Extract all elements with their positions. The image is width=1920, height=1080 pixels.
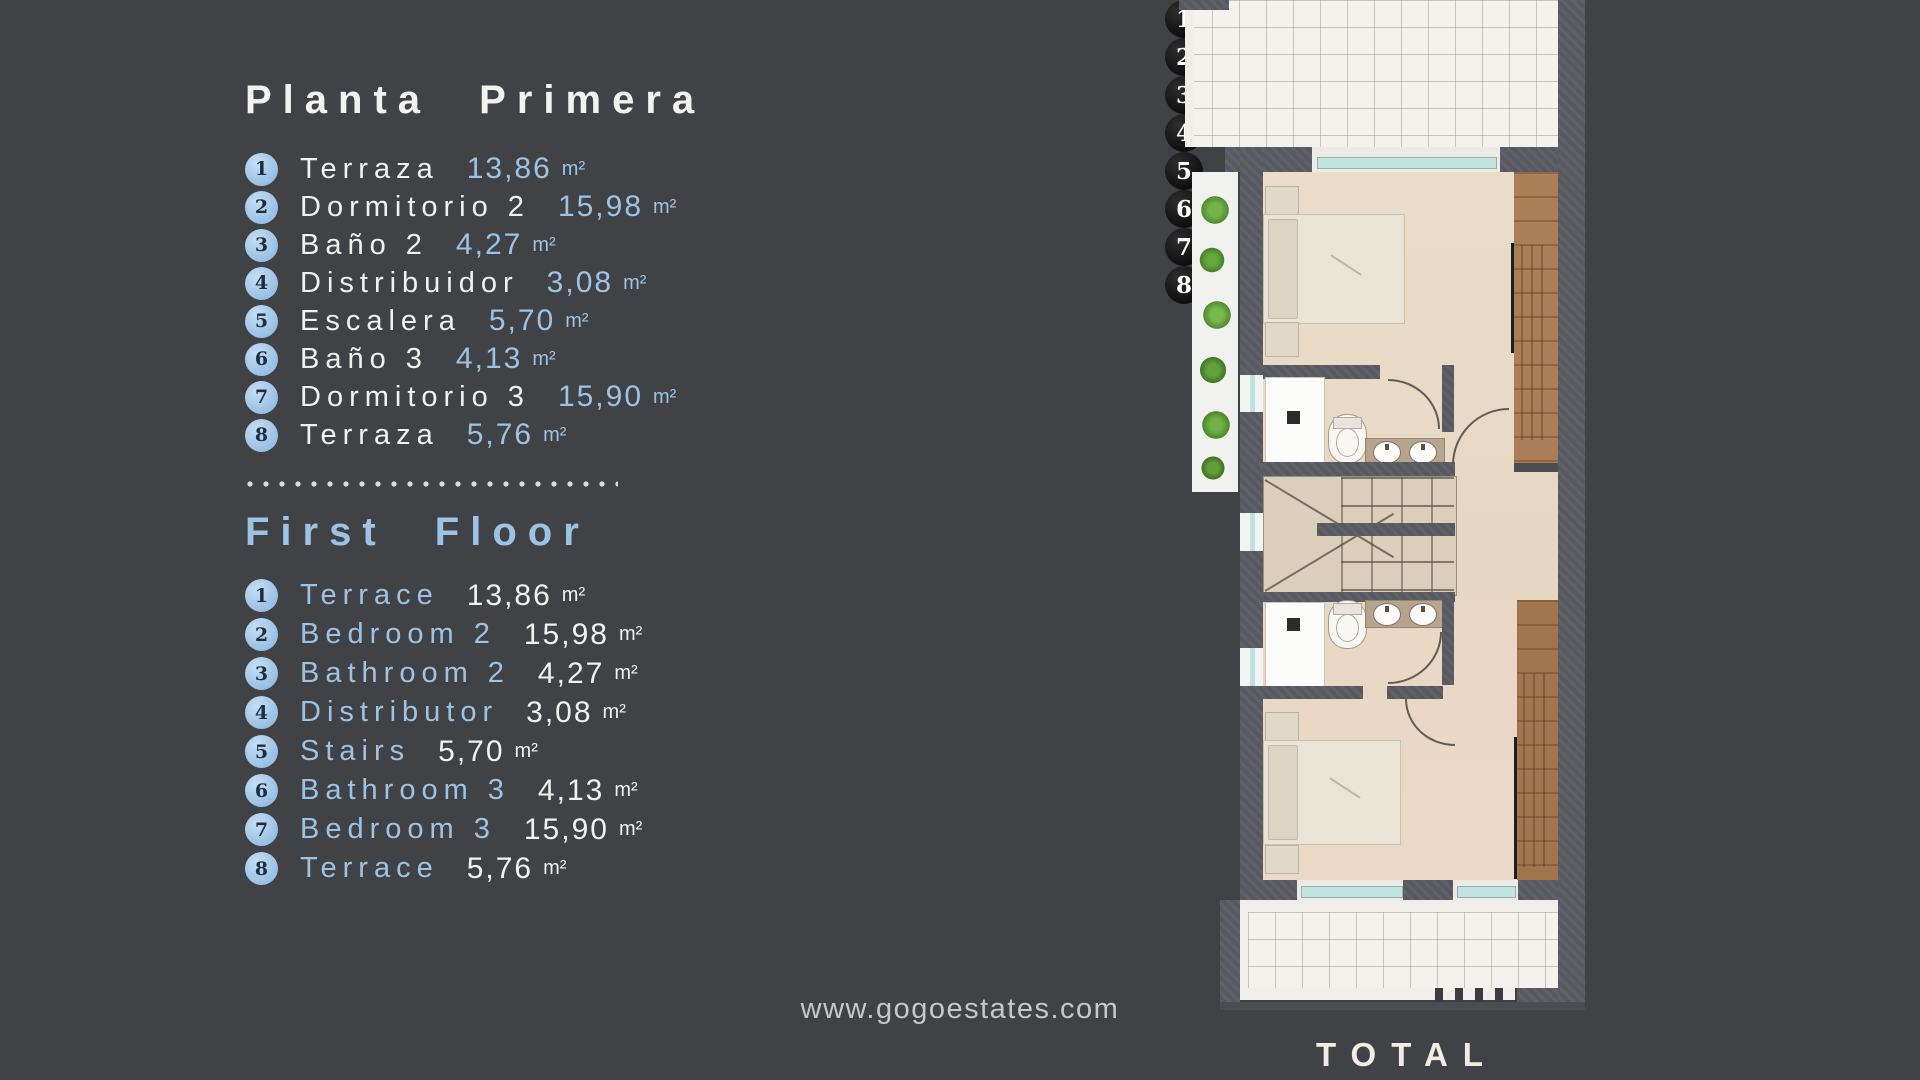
wardrobe-rail — [1511, 243, 1514, 353]
item-number-badge: 4 — [245, 696, 278, 729]
room-area: 3,08 — [526, 696, 592, 730]
legend-row: 4 Distribuidor 3,08 m² — [245, 264, 705, 302]
legend-row: 2 Dormitorio 2 15,98 m² — [245, 188, 705, 226]
room-name: Terraza — [300, 153, 439, 186]
wall-segment — [1442, 365, 1454, 432]
item-number-badge: 8 — [245, 852, 278, 885]
plants — [1196, 180, 1234, 480]
wall-segment — [1263, 686, 1363, 699]
area-unit: m² — [653, 196, 676, 219]
item-number-badge: 7 — [245, 813, 278, 846]
dotted-separator — [246, 480, 618, 488]
legend-en-rows: 1 Terrace 13,86 m² 2 Bedroom 2 15,98 m² … — [245, 576, 642, 888]
room-area: 4,27 — [456, 228, 522, 262]
legend-es-title: Planta Primera — [245, 76, 705, 124]
room-area: 4,13 — [538, 774, 604, 808]
item-number-badge: 7 — [245, 381, 278, 414]
item-number-badge: 3 — [245, 229, 278, 262]
area-unit: m² — [623, 272, 646, 295]
terrace-8-floor — [1248, 912, 1558, 988]
legend-row: 5 Escalera 5,70 m² — [245, 302, 705, 340]
room-name: Terrace — [300, 579, 439, 612]
sink — [1373, 603, 1401, 626]
area-unit: m² — [653, 386, 676, 409]
legend-english: First Floor 1 Terrace 13,86 m² 2 Bedroom… — [245, 508, 642, 888]
room-name: Terraza — [300, 419, 439, 452]
wall-segment — [1263, 462, 1455, 476]
legend-row: 1 Terrace 13,86 m² — [245, 576, 642, 615]
wall-segment — [1514, 463, 1558, 472]
area-unit: m² — [614, 779, 637, 802]
room-area: 4,13 — [456, 342, 522, 376]
area-unit: m² — [614, 662, 637, 685]
area-unit: m² — [565, 310, 588, 333]
item-number-badge: 2 — [245, 191, 278, 224]
balustrade — [1435, 988, 1517, 1003]
window — [1240, 648, 1263, 686]
legend-row: 3 Bathroom 2 4,27 m² — [245, 654, 642, 693]
wall-segment — [1518, 880, 1558, 902]
window — [1301, 886, 1403, 898]
legend-row: 6 Bathroom 3 4,13 m² — [245, 771, 642, 810]
legend-row: 6 Baño 3 4,13 m² — [245, 340, 705, 378]
item-number-badge: 5 — [245, 735, 278, 768]
legend-row: 3 Baño 2 4,27 m² — [245, 226, 705, 264]
wall-segment — [1387, 686, 1443, 699]
floorplan-poster: Planta Primera 1 Terraza 13,86 m² 2 Dorm… — [0, 0, 1920, 1080]
room-area: 15,90 — [524, 813, 609, 847]
room-area: 15,98 — [524, 618, 609, 652]
legend-en-title: First Floor — [245, 508, 642, 556]
window — [1240, 513, 1263, 551]
legend-row: 1 Terraza 13,86 m² — [245, 150, 705, 188]
item-number-badge: 1 — [245, 579, 278, 612]
bed — [1263, 214, 1405, 324]
area-unit: m² — [619, 623, 642, 646]
area-unit: m² — [543, 424, 566, 447]
room-name: Bathroom 2 — [300, 657, 510, 690]
area-unit: m² — [532, 234, 555, 257]
item-number-badge: 1 — [245, 153, 278, 186]
window — [1240, 375, 1263, 412]
legend-row: 4 Distributor 3,08 m² — [245, 693, 642, 732]
legend-row: 5 Stairs 5,70 m² — [245, 732, 642, 771]
shower — [1265, 602, 1325, 690]
sink — [1373, 441, 1401, 464]
item-number-badge: 8 — [245, 419, 278, 452]
floor-plan: 1 2 3 4 5 6 7 8 — [1165, 0, 1595, 1012]
room-name: Bathroom 3 — [300, 774, 510, 807]
room-name: Dormitorio 3 — [300, 381, 530, 414]
room-area: 13,86 — [467, 579, 552, 613]
wall-segment — [1220, 900, 1240, 1004]
room-name: Baño 2 — [300, 229, 428, 262]
terrace-1-floor — [1185, 0, 1558, 147]
room-area: 5,70 — [438, 735, 504, 769]
area-unit: m² — [603, 701, 626, 724]
wardrobe-rail — [1514, 737, 1517, 879]
wall-segment — [1225, 147, 1312, 172]
toilet — [1328, 600, 1367, 649]
wardrobe — [1517, 600, 1558, 890]
wall-right — [1558, 0, 1585, 1008]
wall-segment — [1403, 880, 1453, 902]
room-name: Dormitorio 2 — [300, 191, 530, 224]
legend-row: 8 Terrace 5,76 m² — [245, 849, 642, 888]
room-area: 13,86 — [467, 152, 552, 186]
shower-drain — [1287, 411, 1300, 424]
area-unit: m² — [562, 158, 585, 181]
item-number-badge: 2 — [245, 618, 278, 651]
room-name: Baño 3 — [300, 343, 428, 376]
legend-row: 2 Bedroom 2 15,98 m² — [245, 615, 642, 654]
room-name: Bedroom 3 — [300, 813, 496, 846]
wall-segment — [1179, 0, 1229, 10]
room-area: 3,08 — [547, 266, 613, 300]
room-name: Terrace — [300, 852, 439, 885]
total-label: TOTAL — [1316, 1036, 1498, 1074]
room-name: Distributor — [300, 696, 498, 729]
window — [1457, 886, 1516, 898]
room-name: Distribuidor — [300, 267, 519, 300]
stair-landing-wall — [1317, 523, 1455, 536]
area-unit: m² — [619, 818, 642, 841]
wall-segment — [1220, 1002, 1585, 1010]
item-number-badge: 4 — [245, 267, 278, 300]
room-area: 4,27 — [538, 657, 604, 691]
wall-segment — [1442, 600, 1454, 685]
area-unit: m² — [515, 740, 538, 763]
wardrobe — [1514, 172, 1558, 463]
room-area: 15,90 — [558, 380, 643, 414]
item-number-badge: 6 — [245, 774, 278, 807]
room-area: 15,98 — [558, 190, 643, 224]
nightstand — [1265, 845, 1299, 874]
room-name: Stairs — [300, 735, 410, 768]
item-number-badge: 5 — [245, 305, 278, 338]
room-area: 5,76 — [467, 418, 533, 452]
room-name: Bedroom 2 — [300, 618, 496, 651]
area-unit: m² — [562, 584, 585, 607]
window — [1317, 157, 1497, 169]
website-url: www.gogoestates.com — [801, 993, 1120, 1026]
wall-segment — [1240, 880, 1297, 902]
bed — [1263, 740, 1401, 845]
legend-spanish: Planta Primera 1 Terraza 13,86 m² 2 Dorm… — [245, 76, 705, 454]
nightstand — [1265, 712, 1299, 741]
room-area: 5,70 — [489, 304, 555, 338]
legend-es-rows: 1 Terraza 13,86 m² 2 Dormitorio 2 15,98 … — [245, 150, 705, 454]
item-number-badge: 3 — [245, 657, 278, 690]
toilet — [1328, 414, 1367, 464]
wall-segment — [1500, 147, 1558, 172]
sink — [1409, 441, 1437, 464]
area-unit: m² — [532, 348, 555, 371]
area-unit: m² — [543, 857, 566, 880]
shower-drain — [1287, 618, 1300, 631]
room-name: Escalera — [300, 305, 461, 338]
terrace-1-left-edge — [1185, 0, 1194, 147]
item-number-badge: 6 — [245, 343, 278, 376]
nightstand — [1265, 322, 1299, 357]
legend-row: 7 Bedroom 3 15,90 m² — [245, 810, 642, 849]
legend-row: 7 Dormitorio 3 15,90 m² — [245, 378, 705, 416]
legend-row: 8 Terraza 5,76 m² — [245, 416, 705, 454]
sink — [1409, 603, 1437, 626]
room-area: 5,76 — [467, 852, 533, 886]
